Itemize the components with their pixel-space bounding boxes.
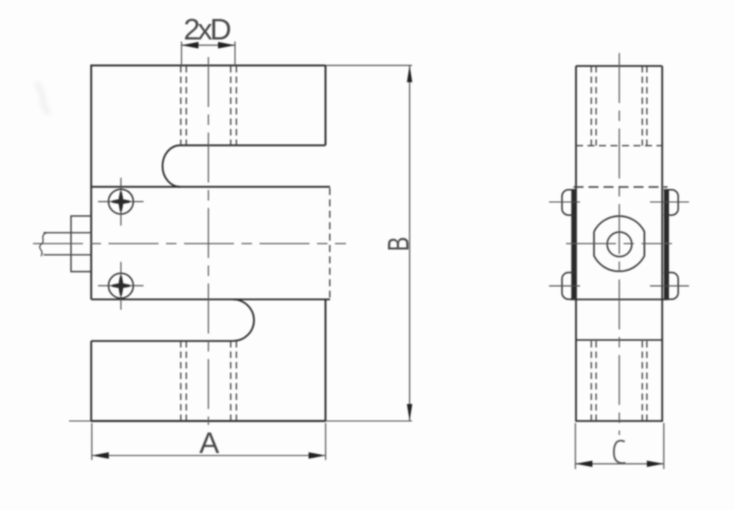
svg-text:2xD: 2xD	[184, 14, 232, 47]
svg-text:A: A	[199, 427, 219, 460]
svg-text:B: B	[383, 237, 416, 252]
